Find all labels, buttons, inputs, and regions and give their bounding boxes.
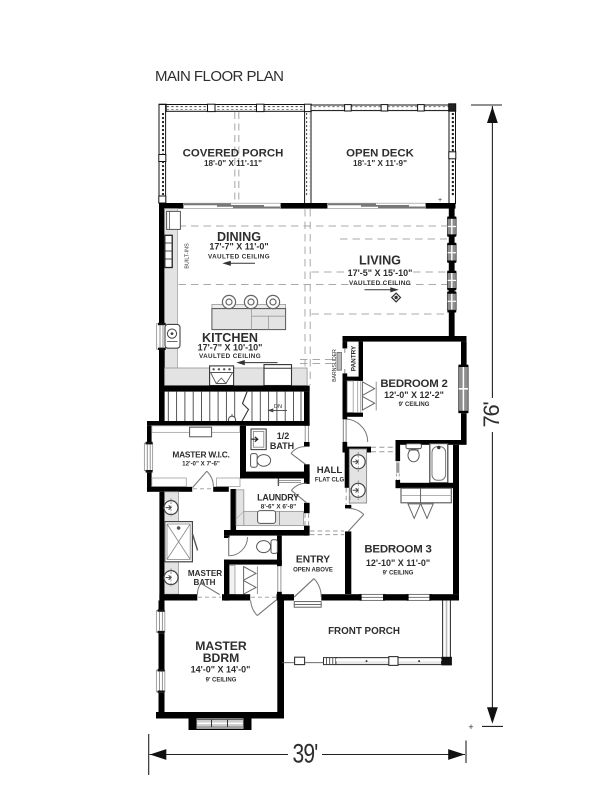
svg-text:OPEN ABOVE: OPEN ABOVE bbox=[293, 568, 333, 574]
svg-text:14'-0" X 14'-0": 14'-0" X 14'-0" bbox=[191, 665, 251, 675]
svg-text:18'-1" X 11'-9": 18'-1" X 11'-9" bbox=[353, 159, 407, 168]
svg-text:39': 39' bbox=[292, 739, 317, 769]
svg-text:OPEN DECK: OPEN DECK bbox=[346, 148, 414, 160]
svg-text:FLAT CLG: FLAT CLG bbox=[315, 478, 345, 484]
svg-text:VAULTED CEILING: VAULTED CEILING bbox=[349, 280, 411, 287]
svg-text:9' CEILING: 9' CEILING bbox=[383, 570, 414, 576]
svg-text:BEDROOM 2: BEDROOM 2 bbox=[380, 378, 447, 390]
svg-text:+: + bbox=[438, 197, 442, 204]
svg-text:+: + bbox=[468, 722, 473, 732]
svg-text:12'-0" X 12'-2": 12'-0" X 12'-2" bbox=[384, 390, 444, 400]
svg-text:76': 76' bbox=[479, 401, 504, 427]
svg-text:12'-10" X 11'-0": 12'-10" X 11'-0" bbox=[366, 558, 430, 568]
svg-text:VAULTED CEILING: VAULTED CEILING bbox=[208, 253, 270, 260]
svg-text:18'-0" X 11'-11": 18'-0" X 11'-11" bbox=[204, 159, 262, 168]
svg-text:17'-5" X 15'-10": 17'-5" X 15'-10" bbox=[348, 268, 413, 278]
svg-text:17'-7" X 11'-0": 17'-7" X 11'-0" bbox=[209, 242, 268, 252]
svg-text:HALL: HALL bbox=[317, 465, 343, 476]
svg-text:COVERED PORCH: COVERED PORCH bbox=[183, 148, 284, 160]
svg-text:BDRM: BDRM bbox=[203, 651, 240, 665]
svg-text:PANTRY: PANTRY bbox=[351, 345, 358, 371]
svg-text:BATH: BATH bbox=[270, 441, 294, 451]
svg-text:17'-7" X 10'-10": 17'-7" X 10'-10" bbox=[198, 343, 263, 353]
svg-text:LIVING: LIVING bbox=[359, 254, 401, 268]
svg-text:9' CEILING: 9' CEILING bbox=[206, 678, 237, 684]
svg-text:ENTRY: ENTRY bbox=[296, 554, 330, 565]
svg-text:FRONT PORCH: FRONT PORCH bbox=[328, 626, 400, 637]
svg-text:MASTER: MASTER bbox=[188, 569, 222, 578]
svg-text:8'-6" X 6'-8": 8'-6" X 6'-8" bbox=[261, 503, 296, 510]
svg-text:LAUNDRY: LAUNDRY bbox=[257, 492, 299, 502]
svg-text:1/2: 1/2 bbox=[277, 431, 290, 441]
svg-text:BARNSLIDER: BARNSLIDER bbox=[332, 349, 338, 382]
svg-text:DN: DN bbox=[274, 404, 282, 410]
svg-text:9' CEILING: 9' CEILING bbox=[399, 402, 430, 408]
svg-text:BUILT-INS: BUILT-INS bbox=[185, 243, 191, 269]
svg-text:12'-0" X 7'-6": 12'-0" X 7'-6" bbox=[182, 460, 220, 467]
svg-text:MAIN FLOOR PLAN: MAIN FLOOR PLAN bbox=[155, 68, 283, 85]
svg-text:MASTER W.I.C.: MASTER W.I.C. bbox=[172, 449, 229, 459]
svg-text:BEDROOM 3: BEDROOM 3 bbox=[364, 544, 431, 556]
svg-text:VAULTED CEILING: VAULTED CEILING bbox=[199, 353, 261, 360]
